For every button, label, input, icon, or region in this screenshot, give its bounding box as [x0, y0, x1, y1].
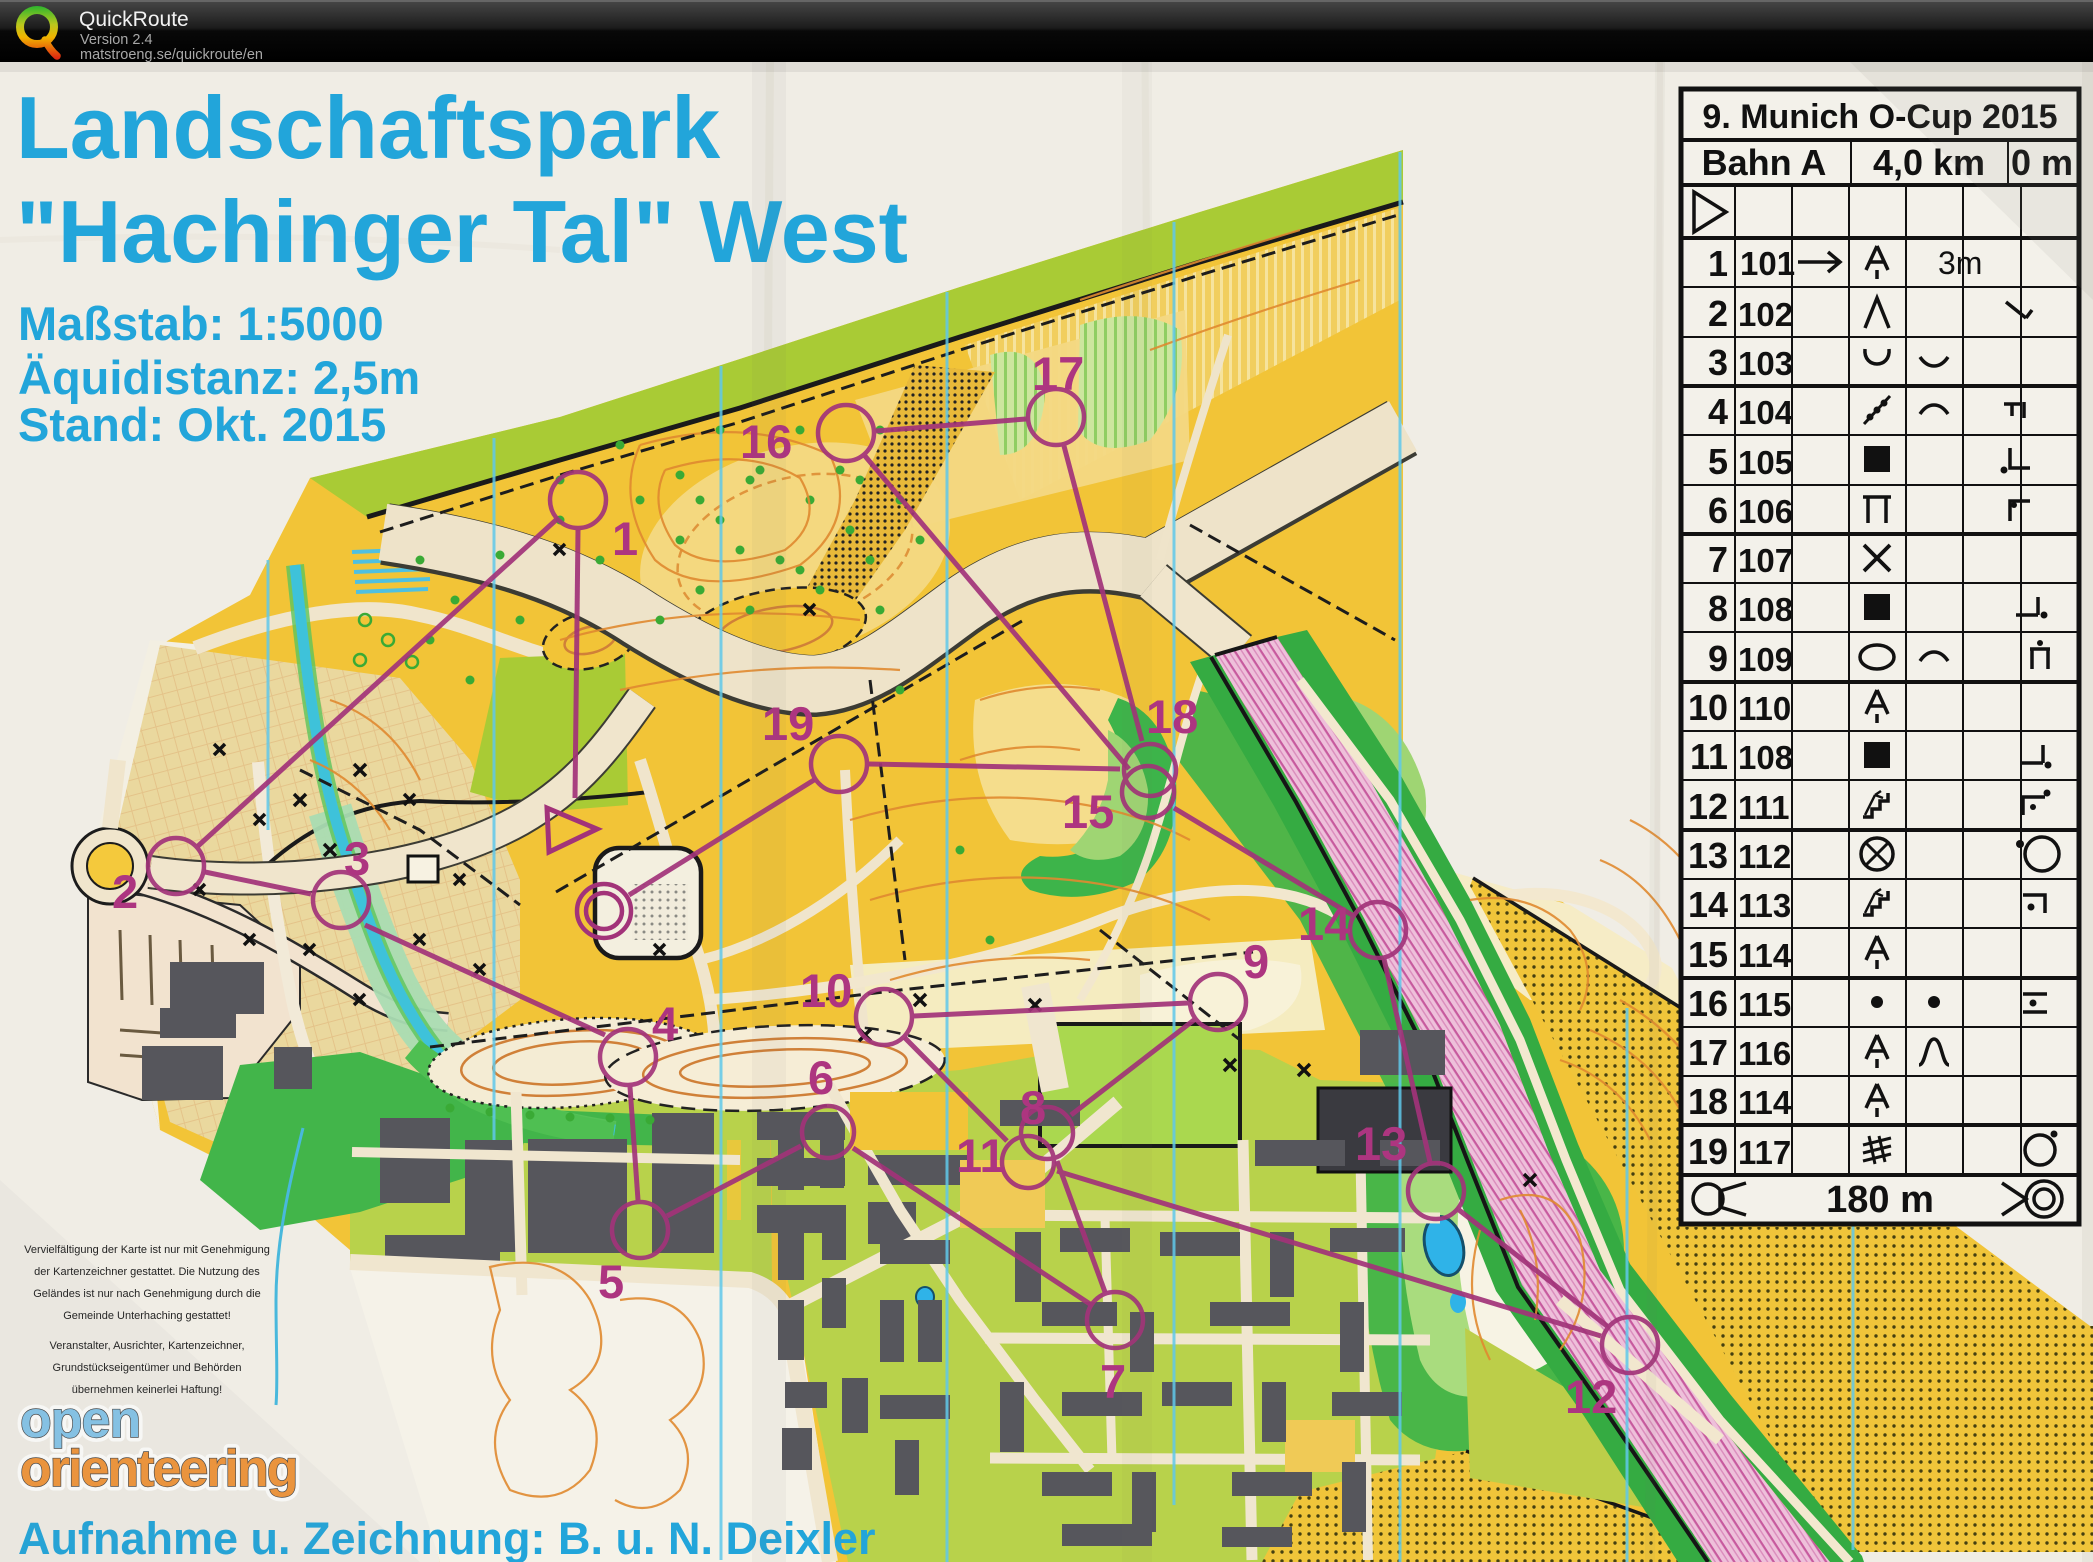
svg-text:8: 8 — [1020, 1081, 1046, 1134]
svg-text:10: 10 — [1688, 687, 1728, 728]
svg-text:3: 3 — [344, 832, 370, 885]
svg-text:matstroeng.se/quickroute/en: matstroeng.se/quickroute/en — [80, 47, 263, 63]
svg-text:113: 113 — [1738, 887, 1791, 924]
svg-text:15: 15 — [1062, 785, 1114, 838]
svg-text:14: 14 — [1298, 897, 1350, 950]
svg-text:15: 15 — [1688, 934, 1728, 975]
svg-text:13: 13 — [1688, 835, 1728, 876]
svg-text:11: 11 — [956, 1129, 1006, 1182]
svg-text:9: 9 — [1708, 638, 1728, 679]
svg-text:3m: 3m — [1938, 245, 1982, 281]
svg-text:18: 18 — [1146, 690, 1198, 743]
svg-text:105: 105 — [1738, 444, 1793, 481]
svg-text:117: 117 — [1738, 1134, 1791, 1171]
svg-text:11: 11 — [1690, 736, 1728, 777]
svg-text:5: 5 — [1708, 441, 1728, 482]
svg-text:Stand: Okt. 2015: Stand: Okt. 2015 — [18, 398, 386, 451]
svg-text:QuickRoute: QuickRoute — [79, 8, 189, 31]
svg-text:111: 111 — [1738, 789, 1789, 826]
svg-text:5: 5 — [598, 1255, 624, 1308]
svg-text:18: 18 — [1688, 1081, 1728, 1122]
svg-text:9: 9 — [1243, 935, 1269, 988]
svg-text:Bahn A: Bahn A — [1702, 142, 1827, 183]
svg-text:12: 12 — [1688, 786, 1728, 827]
svg-text:114: 114 — [1738, 937, 1792, 974]
svg-text:1: 1 — [1708, 243, 1728, 284]
svg-text:180 m: 180 m — [1826, 1179, 1934, 1221]
svg-text:17: 17 — [1032, 347, 1084, 400]
svg-text:Maßstab: 1:5000: Maßstab: 1:5000 — [18, 297, 384, 350]
svg-text:101: 101 — [1740, 245, 1795, 282]
svg-text:108: 108 — [1738, 739, 1793, 776]
svg-text:6: 6 — [1708, 490, 1728, 531]
svg-text:14: 14 — [1688, 884, 1728, 925]
svg-text:17: 17 — [1688, 1032, 1728, 1073]
svg-text:4: 4 — [1708, 391, 1728, 432]
svg-text:10: 10 — [800, 964, 852, 1017]
svg-text:107: 107 — [1738, 542, 1793, 579]
svg-text:2: 2 — [112, 865, 138, 918]
svg-text:106: 106 — [1738, 493, 1793, 530]
svg-text:110: 110 — [1738, 690, 1791, 727]
svg-text:19: 19 — [1688, 1131, 1728, 1172]
svg-text:4: 4 — [652, 997, 678, 1050]
svg-text:Version 2.4: Version 2.4 — [80, 32, 153, 48]
svg-text:109: 109 — [1738, 641, 1793, 678]
svg-text:16: 16 — [1688, 983, 1728, 1024]
svg-text:115: 115 — [1738, 986, 1791, 1023]
svg-text:102: 102 — [1738, 296, 1793, 333]
svg-text:Äquidistanz: 2,5m: Äquidistanz: 2,5m — [18, 351, 420, 404]
svg-text:7: 7 — [1708, 539, 1728, 580]
svg-text:Landschaftspark: Landschaftspark — [16, 78, 721, 177]
svg-text:12: 12 — [1565, 1370, 1617, 1423]
svg-text:2: 2 — [1708, 293, 1728, 334]
svg-text:116: 116 — [1738, 1035, 1791, 1072]
svg-text:112: 112 — [1738, 838, 1791, 875]
svg-text:6: 6 — [808, 1051, 834, 1104]
svg-text:104: 104 — [1738, 394, 1794, 431]
svg-text:1: 1 — [612, 512, 638, 565]
svg-text:114: 114 — [1738, 1084, 1792, 1121]
svg-text:108: 108 — [1738, 591, 1793, 628]
svg-text:103: 103 — [1738, 345, 1793, 382]
svg-text:8: 8 — [1708, 588, 1728, 629]
svg-text:13: 13 — [1355, 1117, 1407, 1170]
svg-text:3: 3 — [1708, 342, 1728, 383]
